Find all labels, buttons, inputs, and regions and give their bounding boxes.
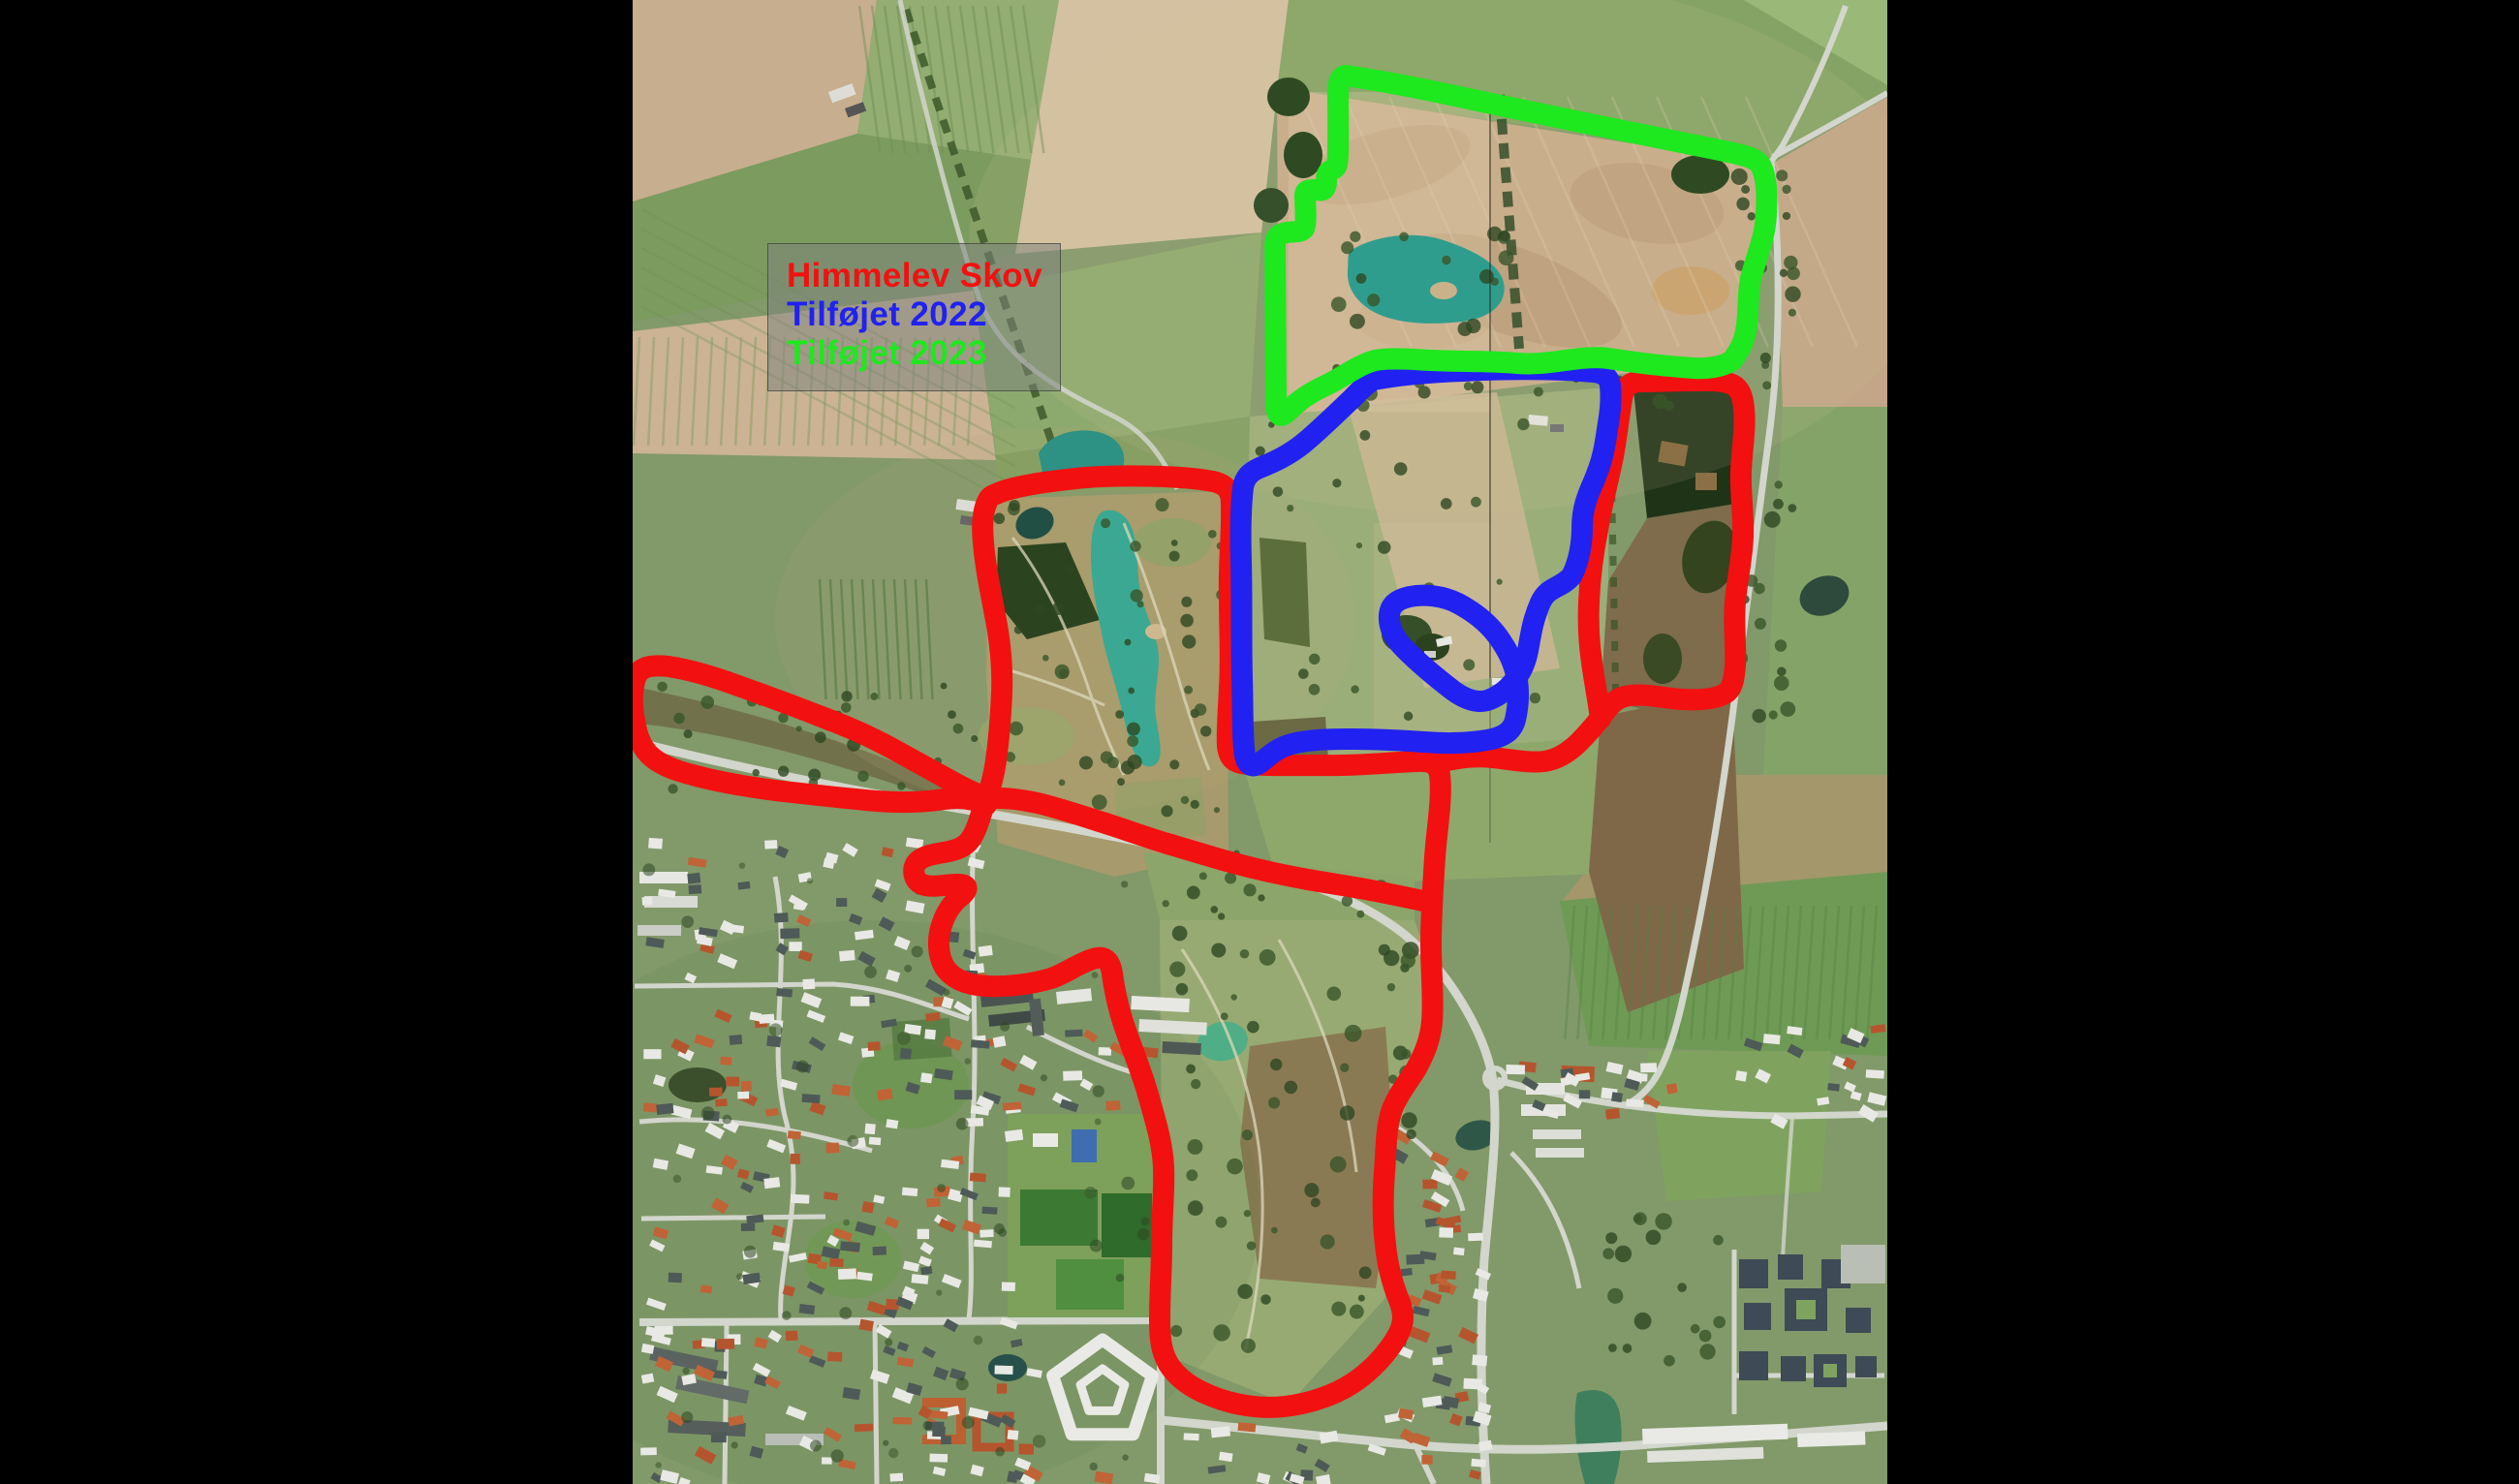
tree bbox=[956, 1377, 969, 1390]
tree bbox=[1176, 983, 1189, 996]
tree bbox=[681, 915, 694, 928]
tree bbox=[1387, 983, 1395, 991]
tree bbox=[864, 966, 877, 978]
tree bbox=[731, 1441, 738, 1448]
roof bbox=[741, 1223, 755, 1231]
tree bbox=[1331, 1302, 1346, 1316]
roof bbox=[997, 1383, 1008, 1394]
tree bbox=[937, 1184, 946, 1192]
tree bbox=[736, 1273, 743, 1280]
roof bbox=[641, 897, 652, 906]
tree bbox=[1699, 1330, 1712, 1343]
tree bbox=[673, 1175, 682, 1184]
tree bbox=[1041, 1074, 1047, 1081]
tree bbox=[744, 1246, 757, 1258]
roof bbox=[1471, 1459, 1485, 1468]
tree bbox=[1079, 756, 1093, 769]
tree bbox=[1713, 1316, 1726, 1329]
tree bbox=[1208, 530, 1217, 539]
roof bbox=[929, 1454, 948, 1463]
tree bbox=[841, 702, 852, 713]
roof bbox=[1005, 1129, 1023, 1142]
tree bbox=[1691, 1324, 1700, 1334]
tree bbox=[1471, 497, 1481, 508]
legend-item-tilfojet-2023: Tilføjet 2023 bbox=[787, 334, 1060, 373]
tree bbox=[1774, 480, 1782, 488]
roof bbox=[1472, 1354, 1487, 1366]
tree bbox=[1273, 486, 1284, 497]
tree bbox=[904, 965, 912, 973]
legend-item-tilfojet-2022: Tilføjet 2022 bbox=[787, 295, 1060, 334]
roof bbox=[941, 1436, 951, 1444]
tree bbox=[1169, 551, 1180, 562]
tree bbox=[971, 735, 978, 742]
tree bbox=[701, 1106, 715, 1120]
roof bbox=[791, 1194, 810, 1204]
tree bbox=[1115, 710, 1124, 719]
roof bbox=[1237, 1422, 1256, 1432]
tree bbox=[847, 1135, 858, 1147]
tree bbox=[1010, 722, 1023, 735]
tree bbox=[1406, 1129, 1415, 1139]
tree bbox=[943, 989, 949, 996]
tree bbox=[1210, 906, 1218, 913]
tree bbox=[1341, 241, 1353, 254]
roof bbox=[656, 1103, 673, 1115]
tree bbox=[1441, 498, 1452, 510]
tree bbox=[1762, 381, 1771, 389]
tree bbox=[912, 945, 923, 957]
roof bbox=[687, 873, 700, 884]
legend-item-himmelev-skov: Himmelev Skov bbox=[787, 257, 1060, 295]
roof bbox=[1211, 1426, 1230, 1438]
roof bbox=[726, 1077, 739, 1087]
tree bbox=[1776, 170, 1788, 181]
tree bbox=[1092, 972, 1099, 978]
map-legend: Himmelev Skov Tilføjet 2022 Tilføjet 202… bbox=[767, 243, 1061, 391]
roof bbox=[838, 1268, 856, 1280]
tree bbox=[1163, 900, 1169, 907]
tree bbox=[1191, 1079, 1200, 1089]
tree bbox=[953, 724, 964, 734]
tree bbox=[998, 1228, 1007, 1237]
tree bbox=[1188, 1200, 1203, 1216]
tree bbox=[1782, 185, 1790, 194]
tree bbox=[1340, 1063, 1349, 1071]
tree bbox=[642, 863, 655, 876]
tree bbox=[1311, 1198, 1321, 1208]
tree bbox=[1218, 912, 1225, 919]
tree bbox=[1775, 639, 1787, 651]
roof bbox=[1640, 1063, 1657, 1072]
tree bbox=[1463, 659, 1475, 670]
roof bbox=[1506, 1065, 1525, 1074]
tree bbox=[1359, 1266, 1372, 1279]
tree bbox=[1677, 1283, 1687, 1292]
roof bbox=[855, 1424, 873, 1432]
tree bbox=[1356, 542, 1362, 548]
tree bbox=[1713, 1235, 1724, 1246]
roof bbox=[893, 1417, 913, 1425]
tree bbox=[782, 1311, 792, 1320]
tree bbox=[1764, 511, 1781, 528]
tree bbox=[1748, 212, 1757, 221]
roof bbox=[839, 950, 855, 962]
tree bbox=[1642, 392, 1650, 400]
tree bbox=[1608, 1344, 1617, 1352]
roof bbox=[1007, 1471, 1018, 1484]
roof bbox=[643, 1102, 657, 1112]
roof bbox=[1003, 1102, 1022, 1111]
tree bbox=[769, 1023, 783, 1036]
tree bbox=[841, 691, 852, 701]
tree bbox=[1014, 626, 1023, 634]
tree bbox=[657, 682, 667, 692]
tree bbox=[936, 1289, 942, 1295]
tree bbox=[668, 784, 677, 793]
tree bbox=[1350, 232, 1360, 242]
roof bbox=[889, 1473, 903, 1482]
tree bbox=[1401, 953, 1415, 968]
tree bbox=[888, 1448, 898, 1458]
tree bbox=[684, 729, 693, 738]
tree bbox=[1466, 319, 1480, 333]
tree bbox=[1171, 540, 1178, 546]
tree bbox=[1127, 723, 1140, 736]
tree bbox=[1358, 1295, 1365, 1302]
roof bbox=[1065, 1030, 1082, 1037]
tree bbox=[682, 1368, 689, 1375]
roof bbox=[688, 884, 701, 894]
roof bbox=[1468, 1233, 1483, 1242]
tree bbox=[1350, 314, 1365, 329]
tree bbox=[1664, 1355, 1675, 1367]
roof bbox=[1866, 1069, 1884, 1078]
tree bbox=[1623, 1344, 1633, 1353]
roof bbox=[869, 1137, 882, 1146]
tree bbox=[1216, 1217, 1228, 1228]
tree bbox=[995, 1447, 1005, 1457]
tree bbox=[753, 769, 760, 776]
tree bbox=[1464, 382, 1473, 390]
tree bbox=[1298, 668, 1309, 679]
tree bbox=[1479, 269, 1494, 284]
tree bbox=[1122, 1454, 1128, 1460]
roof bbox=[801, 1094, 820, 1103]
roof bbox=[669, 1273, 682, 1283]
tree bbox=[948, 710, 956, 719]
roof bbox=[709, 1088, 723, 1097]
tree bbox=[1777, 666, 1786, 675]
tree bbox=[962, 1416, 975, 1429]
roof bbox=[980, 1229, 993, 1237]
tree bbox=[1195, 703, 1207, 716]
tree bbox=[1092, 794, 1107, 810]
roof bbox=[1008, 1430, 1019, 1440]
tree bbox=[974, 1336, 983, 1345]
roof bbox=[741, 1081, 752, 1092]
tree bbox=[1200, 726, 1211, 736]
roof bbox=[729, 1035, 742, 1045]
tree bbox=[778, 766, 789, 777]
tree bbox=[1093, 1085, 1104, 1097]
tree bbox=[1401, 1112, 1417, 1128]
tree bbox=[1356, 911, 1364, 918]
roof bbox=[759, 1014, 774, 1024]
roof bbox=[902, 1188, 917, 1196]
tree bbox=[1009, 500, 1019, 510]
tree bbox=[1033, 1435, 1045, 1447]
roof bbox=[954, 1090, 972, 1099]
tree bbox=[1736, 198, 1750, 211]
roof bbox=[1605, 1108, 1620, 1120]
tree bbox=[1247, 1241, 1256, 1250]
roof bbox=[1735, 1070, 1747, 1081]
tree bbox=[1442, 256, 1450, 264]
tree bbox=[722, 1115, 731, 1125]
roof bbox=[932, 1427, 946, 1437]
tree bbox=[796, 726, 802, 731]
roof bbox=[1099, 1047, 1111, 1056]
tree bbox=[1769, 710, 1778, 719]
tree bbox=[1384, 950, 1399, 966]
roof bbox=[774, 912, 789, 922]
tree bbox=[1401, 1049, 1411, 1059]
roof bbox=[1439, 1227, 1453, 1238]
roof bbox=[1421, 1455, 1432, 1465]
roof bbox=[829, 1258, 844, 1267]
tree bbox=[1780, 269, 1788, 277]
tree bbox=[897, 1032, 911, 1045]
tree bbox=[1084, 1187, 1097, 1199]
roof bbox=[994, 1366, 1012, 1376]
tree bbox=[1121, 1177, 1135, 1190]
tree bbox=[1137, 1228, 1150, 1241]
roof bbox=[825, 1143, 839, 1154]
tree bbox=[1731, 169, 1748, 185]
roof bbox=[640, 1447, 657, 1455]
tree bbox=[1351, 685, 1358, 693]
tree bbox=[1191, 800, 1199, 809]
tree bbox=[1128, 688, 1135, 695]
tree bbox=[1211, 943, 1226, 957]
tree bbox=[1287, 505, 1293, 511]
tree bbox=[1125, 639, 1132, 646]
tree bbox=[1172, 926, 1188, 942]
tree bbox=[700, 696, 714, 709]
roof bbox=[1626, 1098, 1643, 1107]
roof bbox=[868, 1041, 881, 1051]
tree bbox=[1774, 675, 1788, 690]
tree bbox=[923, 1421, 933, 1431]
tree bbox=[885, 1339, 892, 1346]
roof bbox=[886, 1119, 898, 1128]
tree bbox=[1199, 872, 1207, 880]
roof bbox=[917, 1229, 929, 1239]
lake-southeast bbox=[1575, 1390, 1622, 1484]
tree bbox=[1035, 603, 1045, 614]
roof bbox=[701, 1338, 715, 1347]
roof bbox=[864, 1124, 875, 1134]
roof bbox=[737, 1092, 749, 1099]
roof bbox=[643, 1049, 661, 1059]
roof bbox=[926, 1198, 940, 1208]
tree bbox=[1788, 309, 1796, 317]
roof bbox=[971, 1039, 990, 1048]
tree bbox=[1186, 1169, 1197, 1181]
tree bbox=[1090, 1463, 1098, 1470]
tree bbox=[1755, 618, 1766, 630]
tree bbox=[796, 1061, 809, 1073]
tree bbox=[1042, 655, 1049, 662]
roof bbox=[912, 1274, 929, 1284]
tree bbox=[1271, 1227, 1278, 1234]
tree bbox=[1345, 1025, 1362, 1042]
roof bbox=[1827, 1083, 1840, 1092]
tree bbox=[857, 770, 869, 782]
tree bbox=[1121, 881, 1128, 887]
tree bbox=[941, 683, 948, 690]
roof bbox=[924, 1029, 936, 1039]
tree bbox=[1633, 1215, 1642, 1223]
tree bbox=[1127, 735, 1138, 747]
tree bbox=[1309, 654, 1320, 665]
tree bbox=[1221, 1012, 1228, 1020]
tree bbox=[1332, 479, 1341, 487]
tree bbox=[810, 1440, 822, 1452]
tree bbox=[807, 878, 813, 883]
tree bbox=[1169, 759, 1179, 769]
tree bbox=[1655, 1213, 1671, 1229]
roof bbox=[1763, 1034, 1781, 1044]
tree bbox=[1059, 668, 1069, 678]
tree bbox=[815, 731, 826, 743]
tree bbox=[1285, 1081, 1298, 1095]
tree bbox=[1356, 273, 1367, 284]
tree bbox=[839, 1307, 852, 1319]
tree bbox=[1137, 601, 1144, 607]
tree bbox=[1051, 603, 1064, 615]
tree bbox=[1472, 381, 1484, 393]
tree bbox=[1169, 962, 1185, 977]
tree bbox=[1788, 504, 1797, 512]
roof bbox=[780, 928, 799, 939]
roof bbox=[1184, 1433, 1199, 1440]
tree bbox=[1773, 499, 1784, 510]
tree bbox=[1258, 894, 1264, 901]
tree bbox=[897, 782, 905, 789]
roof bbox=[791, 1154, 800, 1164]
tree bbox=[1309, 684, 1321, 696]
roof bbox=[1432, 1357, 1443, 1366]
tree bbox=[1244, 1210, 1251, 1217]
tree bbox=[994, 513, 1006, 525]
tree bbox=[964, 1058, 971, 1065]
tree bbox=[1131, 589, 1143, 602]
roof bbox=[655, 1326, 673, 1335]
tree bbox=[1304, 1183, 1319, 1197]
tree bbox=[1367, 294, 1380, 306]
tree bbox=[1783, 212, 1790, 220]
tree bbox=[1517, 418, 1529, 430]
tree bbox=[1243, 883, 1256, 896]
tree bbox=[1180, 614, 1194, 628]
tree bbox=[1326, 987, 1341, 1002]
tree bbox=[1214, 807, 1220, 813]
tree bbox=[1000, 1022, 1010, 1032]
tree bbox=[655, 1462, 661, 1468]
tree bbox=[1499, 231, 1509, 241]
tree bbox=[1780, 701, 1795, 717]
roof bbox=[851, 997, 870, 1006]
tree bbox=[1360, 430, 1371, 441]
tree bbox=[1101, 751, 1113, 763]
roof bbox=[1019, 1443, 1035, 1454]
tree bbox=[1602, 1248, 1614, 1259]
tree bbox=[1534, 386, 1543, 396]
tree bbox=[1227, 1159, 1243, 1175]
tree bbox=[1268, 1098, 1280, 1109]
roof bbox=[1441, 1271, 1456, 1280]
tree bbox=[1241, 1339, 1256, 1353]
tree bbox=[1646, 1230, 1662, 1246]
tree bbox=[1130, 541, 1140, 551]
tree bbox=[1404, 712, 1414, 722]
tree bbox=[1117, 778, 1125, 786]
tree bbox=[1399, 232, 1409, 242]
tree bbox=[1270, 1059, 1282, 1070]
tree bbox=[1181, 597, 1192, 607]
tree bbox=[1187, 886, 1200, 900]
roof bbox=[1611, 1092, 1623, 1102]
tree bbox=[1156, 498, 1169, 511]
roof bbox=[786, 1331, 798, 1342]
tree bbox=[1394, 462, 1408, 476]
roof bbox=[799, 1304, 816, 1314]
tree bbox=[1741, 185, 1750, 194]
tree bbox=[1499, 250, 1514, 265]
tree bbox=[1141, 1217, 1150, 1225]
roof bbox=[1105, 1100, 1121, 1111]
tree bbox=[1116, 1274, 1125, 1283]
aerial-photo bbox=[633, 0, 1887, 1484]
roof bbox=[1002, 1282, 1015, 1291]
tree bbox=[1182, 634, 1196, 648]
tree bbox=[1184, 686, 1193, 695]
roof bbox=[1453, 1248, 1465, 1256]
roof bbox=[873, 1247, 887, 1255]
roof bbox=[998, 1187, 1010, 1197]
roof bbox=[717, 1339, 735, 1349]
tree bbox=[1059, 780, 1066, 787]
roof bbox=[861, 1201, 874, 1214]
tree bbox=[1340, 1105, 1355, 1121]
roof bbox=[920, 1072, 933, 1083]
tree bbox=[1634, 1313, 1652, 1330]
tree bbox=[1330, 1157, 1347, 1173]
tree bbox=[1090, 1240, 1103, 1252]
screenshot-root: Himmelev Skov Tilføjet 2022 Tilføjet 202… bbox=[0, 0, 2519, 1484]
tree bbox=[1664, 401, 1674, 412]
roof bbox=[981, 1207, 997, 1215]
tree bbox=[870, 693, 878, 700]
tree bbox=[1161, 805, 1172, 817]
roof bbox=[840, 1241, 860, 1252]
tree bbox=[739, 862, 746, 869]
tree bbox=[843, 1220, 850, 1226]
tree bbox=[1247, 1021, 1259, 1034]
tree bbox=[1787, 266, 1800, 280]
